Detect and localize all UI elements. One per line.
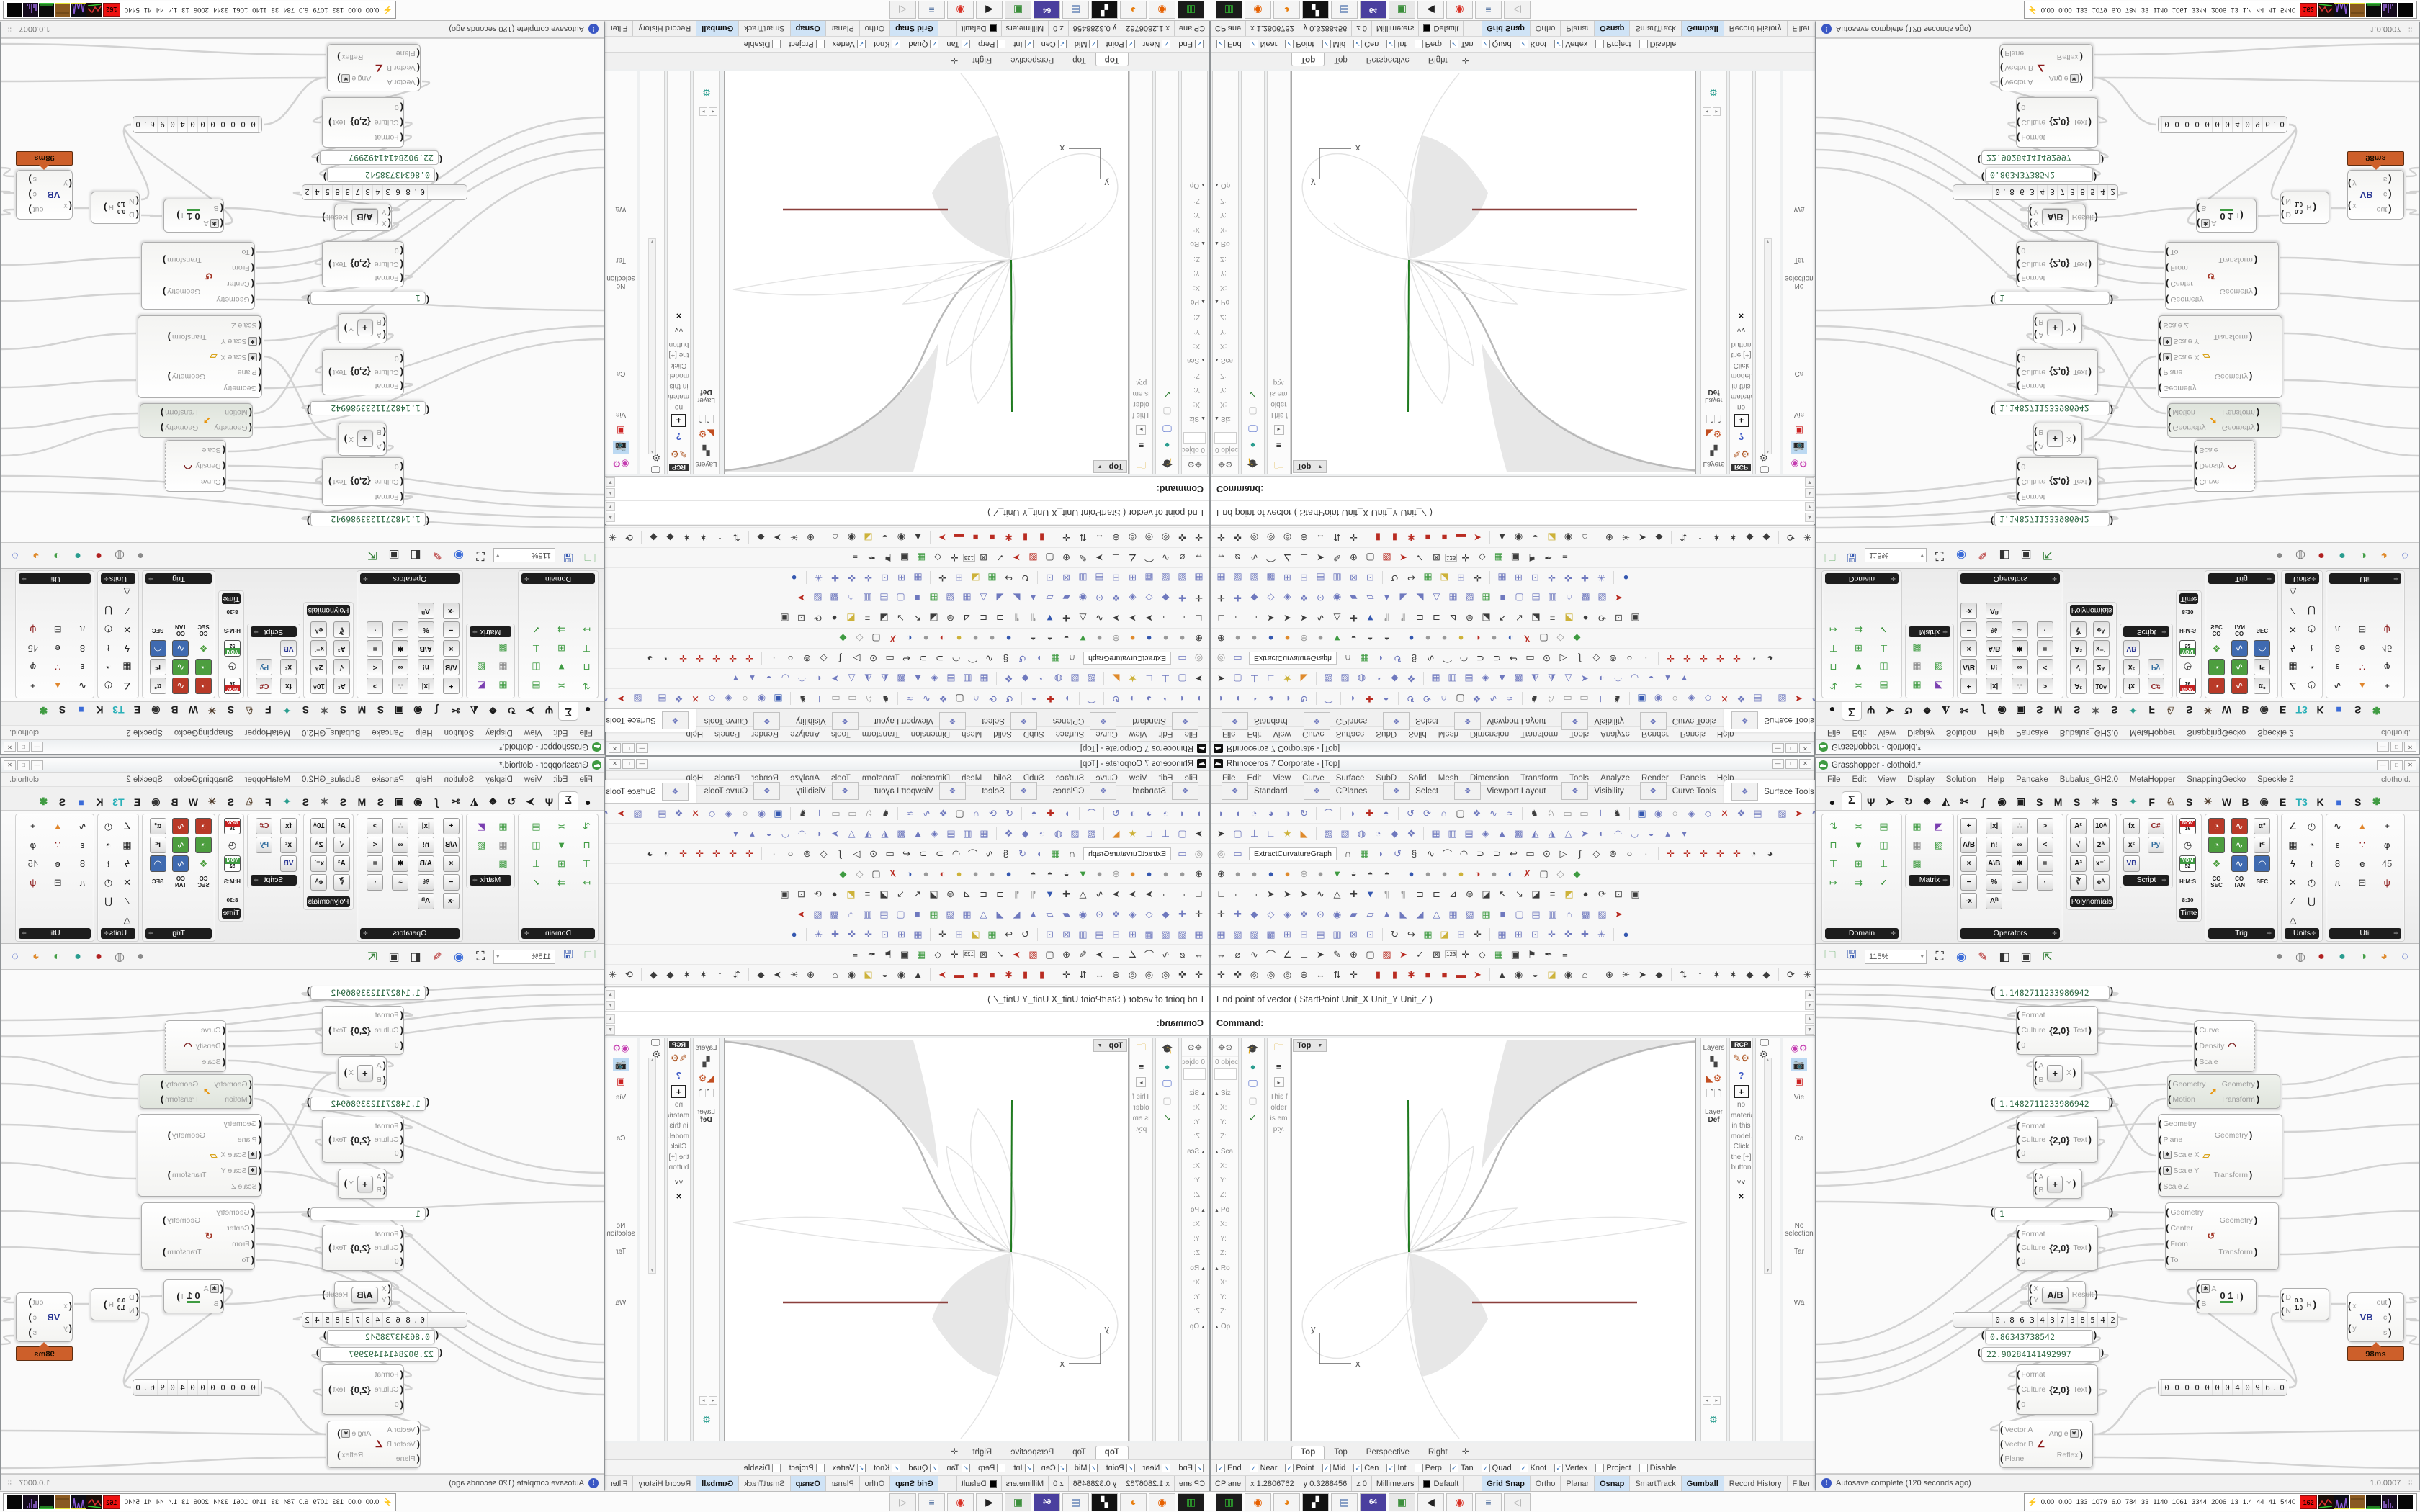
check-icon[interactable]: ✓: [1160, 1112, 1175, 1125]
close-icon[interactable]: ✕: [668, 307, 690, 323]
gh-component-icon[interactable]: CO SEC: [2208, 621, 2225, 638]
gh-panel[interactable]: 1.1482711233986942(): [1994, 401, 2110, 415]
gh-component-icon[interactable]: ∿: [74, 818, 91, 834]
toolbar-icon[interactable]: ↖: [909, 611, 926, 626]
gh-input-port[interactable]: (Format: [375, 1122, 403, 1130]
toolbar-icon[interactable]: ◉: [893, 967, 910, 983]
move-component[interactable]: (Geometry(Motion➚Geometry)Transform): [140, 403, 253, 438]
toolbar-icon[interactable]: ▦: [913, 947, 930, 963]
toolbar-icon[interactable]: ⊥: [1592, 806, 1609, 822]
viewport-top[interactable]: Top▼ yx: [724, 1038, 1129, 1441]
gh-component-icon[interactable]: ◩: [1931, 818, 1948, 834]
osnap-checkbox[interactable]: ✓: [1126, 1464, 1135, 1472]
toolbar-icon[interactable]: ∿: [1157, 550, 1174, 566]
digit-cell[interactable]: 0: [228, 1380, 238, 1395]
gh-input-port[interactable]: (Format: [375, 1230, 403, 1238]
toolbar-icon[interactable]: ▲: [1494, 967, 1510, 983]
toolbar-icon[interactable]: ⊥: [1108, 947, 1124, 963]
digit-cell[interactable]: 3: [2067, 185, 2077, 199]
gh-component-icon[interactable]: ⊞: [1850, 855, 1867, 872]
toolbar-icon[interactable]: ↻: [1017, 570, 1034, 586]
minimize-button[interactable]: —: [1772, 744, 1784, 754]
toolbar-icon[interactable]: ➤: [1108, 886, 1124, 902]
osnap-knot[interactable]: ✓Knot: [874, 40, 901, 49]
toolbar-tab-cplanes[interactable]: ❖CPlanes: [1296, 779, 1375, 803]
collapse-chevrons[interactable]: ˅˅: [1730, 1176, 1752, 1191]
toolbar-icon[interactable]: ⊡: [1362, 927, 1379, 942]
toolbar-icon[interactable]: ▭: [844, 691, 861, 707]
status-toggle-smarttrack[interactable]: SmartTrack: [1630, 20, 1681, 36]
toolbar-icon[interactable]: ✚: [1345, 886, 1362, 902]
gh-component-icon[interactable]: 8:30: [2179, 893, 2196, 909]
toolbar-icon[interactable]: ✚: [1577, 927, 1593, 942]
toolbar-icon[interactable]: ⊃: [1489, 651, 1505, 667]
gh-input-port[interactable]: (Vector A: [2000, 1426, 2033, 1434]
gh-component-icon[interactable]: π: [74, 621, 91, 638]
toolbar-icon[interactable]: ▨: [1594, 906, 1610, 922]
toolbar-icon[interactable]: ❖: [1000, 671, 1017, 687]
gh-component-icon[interactable]: ▦: [495, 678, 511, 694]
range-component[interactable]: (D(N0.0 1.0R): [91, 1288, 140, 1320]
toolbar-icon[interactable]: ▲: [1025, 906, 1041, 922]
floppy64-icon[interactable]: 64: [1034, 1, 1060, 19]
gh-input-port[interactable]: (Plane: [2000, 1454, 2033, 1463]
viewport-page-tab-2[interactable]: Perspective: [1357, 53, 1419, 66]
rhinoceros-icon[interactable]: ▞: [1302, 1, 1329, 19]
gh-component-icon[interactable]: NOV16: [224, 818, 241, 834]
gh-input-port[interactable]: (Center: [217, 1224, 254, 1233]
zoom-extents-icon[interactable]: ⛶: [1931, 547, 1948, 564]
toolbar-icon[interactable]: ✛: [1058, 530, 1075, 546]
gh-output-port[interactable]: Geometry): [2218, 1216, 2257, 1225]
toolbar-icon[interactable]: ▨: [1379, 947, 1395, 963]
toolbar-icon[interactable]: ↔: [1312, 530, 1329, 546]
gh-component-icon[interactable]: ×: [443, 640, 460, 657]
toolbar-icon[interactable]: ▲: [910, 671, 926, 687]
toolbar-icon[interactable]: ✛: [708, 651, 725, 667]
gh-tab-kangaroo[interactable]: ▣: [390, 794, 408, 810]
open-file-icon[interactable]: 🗀: [581, 547, 599, 564]
gh-input-port[interactable]: (Vector A: [387, 1426, 420, 1434]
digit-cell[interactable]: 0: [2212, 117, 2222, 132]
toolbar-icon[interactable]: ◪: [1478, 611, 1494, 626]
expression-badge-icon[interactable]: ✱: [210, 1284, 219, 1293]
toolbar-icon[interactable]: ◆: [1651, 530, 1667, 546]
gh-input-port[interactable]: (y: [63, 179, 72, 188]
gh-group-label[interactable]: Trig: [145, 928, 212, 939]
status-segment-3[interactable]: z 0: [1048, 1476, 1068, 1492]
toolbar-icon[interactable]: ●: [1141, 866, 1157, 882]
rhino-titlebar[interactable]: Rhinoceros 7 Corporate - [Top] —□✕: [1211, 757, 1814, 771]
gh-tab-plugin[interactable]: ✶: [315, 702, 333, 718]
toolbar-icon[interactable]: ▦: [1494, 927, 1510, 942]
toolbar-icon[interactable]: ✳: [1618, 530, 1634, 546]
digit-cell[interactable]: 3: [2047, 1313, 2057, 1327]
gh-component-icon[interactable]: ❖: [195, 640, 212, 657]
gh-component-icon[interactable]: ◔: [2208, 659, 2225, 675]
toolbar-tab-standard[interactable]: ❖Standard: [1124, 709, 1206, 733]
toolbar-icon[interactable]: ▭: [1522, 846, 1538, 862]
gh-input-port[interactable]: (Format: [2017, 133, 2045, 142]
gh-component-icon[interactable]: %: [418, 621, 434, 638]
angle-component[interactable]: (Vector A(Vector B(Plane∠Angle✱)Reflex): [1999, 1421, 2093, 1468]
toolbar-icon[interactable]: ⌐: [1229, 886, 1246, 902]
toolbar-icon[interactable]: ⊐: [992, 886, 1008, 902]
gh-input-port[interactable]: (X: [382, 219, 391, 228]
toolbar-icon[interactable]: ✱: [1403, 967, 1420, 983]
gh-digit-scroller[interactable]: 00000004096.0(): [133, 116, 262, 133]
gh-tab-plugin[interactable]: M: [352, 702, 371, 717]
toolbar-icon[interactable]: ◖: [1229, 806, 1246, 822]
toolbar-icon[interactable]: ▣: [1507, 947, 1523, 963]
toolbar-icon[interactable]: ■: [1420, 967, 1436, 983]
toolbar-icon[interactable]: ❖: [1108, 906, 1124, 922]
toolbar-icon[interactable]: ◭: [877, 671, 893, 687]
toolbar-icon[interactable]: ⇅: [1675, 530, 1692, 546]
gh-input-port[interactable]: (0: [2017, 1041, 2045, 1050]
gh-input-port[interactable]: (Culture: [2017, 118, 2045, 127]
gh-tab-params[interactable]: ●: [1823, 795, 1842, 810]
blender-icon[interactable]: ◕: [1120, 1, 1147, 19]
digit-cell[interactable]: 4: [313, 185, 323, 199]
toolbar-icon[interactable]: ∿: [1312, 886, 1329, 902]
gh-tab-plugin[interactable]: K: [2311, 795, 2330, 810]
toolbar-icon[interactable]: ✚: [1229, 590, 1246, 606]
toolbar-icon[interactable]: ★: [1124, 671, 1141, 687]
props-section-view[interactable]: Vie: [605, 410, 637, 424]
osnap-checkbox[interactable]: ✓: [1353, 1464, 1362, 1472]
osnap-checkbox[interactable]: ✓: [1386, 40, 1395, 49]
toolbar-icon[interactable]: ◣: [1395, 906, 1412, 922]
gh-input-port[interactable]: (Format: [2017, 274, 2045, 282]
gh-tab-plugin[interactable]: ✶: [2087, 794, 2105, 810]
gh-input-port[interactable]: (Motion: [215, 409, 252, 418]
toolbar-icon[interactable]: ≡: [1556, 550, 1573, 566]
toolbar-icon[interactable]: ▾: [727, 826, 744, 842]
digit-cell[interactable]: .: [143, 117, 148, 132]
toolbar-icon[interactable]: ✛: [1191, 967, 1207, 983]
help-icon[interactable]: ?: [1734, 1068, 1749, 1081]
expression-badge-icon[interactable]: ✱: [248, 337, 257, 346]
toolbar-icon[interactable]: ◓: [1041, 866, 1058, 882]
preview-mode-icon[interactable]: ◉: [450, 948, 467, 966]
osnap-checkbox[interactable]: ✓: [892, 1464, 900, 1472]
gh-component-icon[interactable]: ◠: [150, 640, 166, 657]
toolbar-icon[interactable]: ◍: [1353, 671, 1370, 687]
toolbar-icon[interactable]: ✜: [1560, 570, 1577, 586]
props-section-wallpaper[interactable]: Wa: [605, 1256, 637, 1307]
gh-tab-plugin[interactable]: S: [2030, 702, 2049, 717]
gh-input-port[interactable]: (Format: [2017, 1370, 2045, 1379]
gh-component-icon[interactable]: ▦: [119, 659, 135, 675]
toolbar-icon[interactable]: §: [998, 846, 1014, 862]
gh-output-port[interactable]: c): [2377, 191, 2392, 199]
status-toggle-gumball[interactable]: Gumball: [696, 20, 738, 36]
toolbar-icon[interactable]: ▧: [1774, 691, 1791, 707]
toolbar-icon[interactable]: ∿: [1312, 611, 1329, 626]
toolbar-icon[interactable]: ↻: [1296, 691, 1312, 707]
gh-tab-plugin[interactable]: M: [2049, 795, 2068, 810]
toolbar-icon[interactable]: ▾: [1676, 826, 1693, 842]
orient-component[interactable]: (Geometry(Center(From(To↺Geometry)Transf…: [141, 242, 255, 310]
layer-filter-icon[interactable]: ▚: [699, 1056, 714, 1068]
list-view-icon[interactable]: ≡: [1272, 439, 1286, 452]
gh-component-icon[interactable]: ∴: [2012, 678, 2028, 694]
toolbar-icon[interactable]: ◎: [1246, 530, 1263, 546]
toolbar-icon[interactable]: ↪: [1403, 570, 1420, 586]
gh-tab-plugin[interactable]: B: [165, 795, 184, 810]
boxedit-section-op[interactable]: Op: [1213, 181, 1238, 197]
digit-cell[interactable]: 3: [363, 1313, 373, 1327]
gh-input-port[interactable]: (0: [375, 246, 403, 255]
scale-nu-component[interactable]: (Geometry(Plane(✱Scale X(✱Scale Y(Scale …: [138, 315, 262, 398]
gh-panel[interactable]: 1.1482711233986942(): [1994, 1097, 2110, 1111]
toolbar-icon[interactable]: ⇅: [1329, 530, 1345, 546]
toolbar-icon[interactable]: ◇: [704, 691, 720, 707]
boxedit-section-sca[interactable]: Sca: [1182, 1140, 1207, 1156]
toolbar-icon[interactable]: ▢: [1229, 826, 1246, 842]
gh-output-port[interactable]: X): [2066, 435, 2076, 444]
gh-input-port[interactable]: (N: [129, 197, 139, 205]
toolbar-icon[interactable]: ⟳: [621, 967, 637, 983]
toolbar-icon[interactable]: ◆: [1157, 906, 1174, 922]
toolbar-icon[interactable]: ⊠: [1058, 570, 1075, 586]
addition-component[interactable]: (A(B+Y): [2033, 1169, 2082, 1199]
digit-cell[interactable]: 8: [2007, 1313, 2017, 1327]
gh-output-port[interactable]: Transform): [161, 1095, 200, 1104]
maximize-button[interactable]: □: [1785, 759, 1798, 769]
toolbar-tab-visibility[interactable]: ❖Visibility: [788, 709, 866, 733]
toolbar-icon[interactable]: ●: [1157, 631, 1174, 647]
toolbar-icon[interactable]: ➤: [769, 967, 786, 983]
close-button[interactable]: ✕: [4, 742, 16, 752]
toolbar-icon[interactable]: ¶: [1008, 611, 1025, 626]
toolbar-icon[interactable]: ⊟: [1296, 927, 1312, 942]
toolbar-icon[interactable]: ◒: [761, 826, 777, 842]
command-scroll-up[interactable]: ▲: [1805, 513, 1814, 522]
gh-component-icon[interactable]: ▦: [495, 837, 511, 853]
osnap-cen[interactable]: ✓Cen: [1041, 1464, 1067, 1472]
layer-tools-icon[interactable]: ◣⚙: [699, 427, 714, 440]
toolbar-icon[interactable]: ■: [1436, 530, 1453, 546]
props-section-wallpaper[interactable]: Wa: [1783, 1256, 1815, 1307]
toolbar-icon[interactable]: ◉: [1329, 906, 1345, 922]
expression-badge-icon[interactable]: ✱: [2163, 353, 2172, 361]
gh-component-icon[interactable]: ▲: [2354, 818, 2370, 834]
boxedit-section-sca[interactable]: Sca: [1182, 356, 1207, 372]
boxedit-input[interactable]: [1214, 432, 1237, 444]
toolbar-icon[interactable]: ▩: [893, 826, 910, 842]
sketch-tool-icon[interactable]: ✎: [429, 948, 446, 966]
gh-tab-plugin[interactable]: K: [2311, 702, 2330, 717]
toolbar-icon[interactable]: ◈: [1683, 691, 1700, 707]
digit-cell[interactable]: 4: [2097, 1313, 2107, 1327]
toolbar-icon[interactable]: ⊃: [915, 651, 931, 667]
gh-menu-item[interactable]: Edit: [548, 728, 574, 738]
toolbar-icon[interactable]: ▩: [826, 906, 843, 922]
toolbar-icon[interactable]: ✗: [1519, 866, 1536, 882]
toolbar-icon[interactable]: ▥: [1544, 590, 1561, 606]
toolbar-icon[interactable]: ✛: [1213, 590, 1229, 606]
gh-component-icon[interactable]: YOM52: [2179, 640, 2196, 657]
layer-tools-icon[interactable]: ◣⚙: [1706, 427, 1722, 440]
toolbar-icon[interactable]: ▢: [951, 806, 968, 822]
toolbar-icon[interactable]: ▦: [959, 590, 975, 606]
status-segment-1[interactable]: x 1.2806762: [1246, 1476, 1299, 1492]
gh-input-port[interactable]: (Curve: [2195, 477, 2224, 486]
toolbar-tab-curve-tools[interactable]: ❖Curve Tools: [1632, 779, 1724, 803]
toolbar-icon[interactable]: ◉: [843, 967, 860, 983]
toolbar-icon[interactable]: ♞: [877, 806, 894, 822]
toolbar-icon[interactable]: ⊟: [1108, 570, 1124, 586]
gh-input-port[interactable]: (Geometry: [220, 1120, 261, 1128]
toolbar-icon[interactable]: ●: [1124, 866, 1141, 882]
viewport-top[interactable]: Top▼ yx: [1291, 71, 1696, 474]
construct-domain-component[interactable]: (✱A(B0 1I): [2196, 199, 2257, 233]
gh-component-icon[interactable]: √: [333, 659, 350, 675]
gh-component-icon[interactable]: ⊞: [553, 640, 570, 657]
prompt-scroll-down[interactable]: ▼: [606, 1025, 615, 1035]
gh-input-port[interactable]: (Geometry: [220, 384, 261, 392]
toolbar-icon[interactable]: ↑: [712, 967, 728, 983]
toolbar-icon[interactable]: ◆: [1569, 631, 1585, 647]
gh-component-icon[interactable]: Py: [2148, 837, 2164, 853]
gh-component-icon[interactable]: ⊟: [2354, 621, 2370, 638]
toolbar-icon[interactable]: ▨: [810, 906, 826, 922]
toolbar-icon[interactable]: ◔: [1745, 846, 1762, 862]
toolbar-icon[interactable]: ▤: [876, 590, 892, 606]
toolbar-icon[interactable]: ◪: [1478, 886, 1494, 902]
toolbar-icon[interactable]: ➤: [793, 590, 810, 606]
gh-output-port[interactable]: Transform): [2214, 1171, 2253, 1179]
gh-tab-sets[interactable]: Ψ: [1862, 795, 1881, 810]
toolbar-icon[interactable]: ✗: [884, 631, 901, 647]
mru-command-button[interactable]: ExtractCurvatureGraph: [1083, 847, 1171, 860]
gh-component-icon[interactable]: ≍: [1850, 818, 1867, 834]
toolbar-icon[interactable]: ✳: [1593, 927, 1610, 942]
osnap-checkbox[interactable]: ✓: [1058, 40, 1067, 49]
toolbar-icon[interactable]: ✚: [1174, 906, 1191, 922]
toolbar-icon[interactable]: ∩: [1340, 651, 1356, 667]
toolbar-icon[interactable]: ↪: [1000, 570, 1017, 586]
gh-input-port[interactable]: (X: [2029, 1284, 2038, 1293]
osnap-knot[interactable]: ✓Knot: [1520, 1464, 1547, 1472]
props-section-camera[interactable]: Ca: [605, 369, 637, 410]
digit-cell[interactable]: 7: [353, 1313, 363, 1327]
toolbar-icon[interactable]: ⊿: [1445, 611, 1461, 626]
gh-tab-mesh[interactable]: ◭: [1937, 794, 1955, 810]
toolbar-icon[interactable]: ◎: [1279, 530, 1296, 546]
toolbar-icon[interactable]: ❖: [1403, 671, 1420, 687]
gh-tab-curve[interactable]: ↻: [1899, 794, 1918, 810]
toolbar-icon[interactable]: ◍: [1353, 826, 1370, 842]
gh-input-port[interactable]: (Motion: [2168, 1095, 2205, 1104]
digit-cell[interactable]: 4: [373, 185, 383, 199]
viewport-page-tab-1[interactable]: Top: [1325, 53, 1357, 66]
prompt-scroll-down[interactable]: ▼: [606, 477, 615, 487]
gh-component-icon[interactable]: ⊤: [578, 640, 595, 657]
toolbar-icon[interactable]: ▴: [744, 826, 761, 842]
toolbar-icon[interactable]: ▣: [1633, 691, 1650, 707]
camera-properties-icon[interactable]: 📷: [1791, 1058, 1807, 1071]
osnap-checkbox[interactable]: [772, 40, 781, 49]
gh-component-icon[interactable]: x²: [2123, 659, 2140, 675]
gh-tab-maths[interactable]: Σ: [1842, 702, 1862, 721]
save-file-icon[interactable]: 🖫: [560, 948, 577, 966]
gh-input-port[interactable]: (To: [217, 248, 254, 256]
toolbar-icon[interactable]: ▭: [1522, 651, 1538, 667]
toolbar-icon[interactable]: ▮: [1386, 967, 1403, 983]
gh-menu-item[interactable]: Edit: [548, 775, 574, 785]
gh-component-icon[interactable]: ·: [2037, 874, 2053, 891]
gh-input-port[interactable]: (Format: [375, 382, 403, 390]
gh-output-port[interactable]: Transform): [2218, 1248, 2257, 1256]
gh-component-icon[interactable]: ⊥: [1875, 640, 1892, 657]
osnap-checkbox[interactable]: [997, 1464, 1005, 1472]
display-panel-scrollbar[interactable]: [1764, 1058, 1772, 1274]
gh-component-icon[interactable]: <: [367, 837, 383, 853]
toolbar-icon[interactable]: ●: [1577, 886, 1594, 902]
gh-component-icon[interactable]: ▧: [1931, 837, 1948, 853]
toolbar-icon[interactable]: △: [1075, 886, 1091, 902]
toolbar-icon[interactable]: ◪: [926, 611, 942, 626]
toolbar-icon[interactable]: ⇅: [1075, 530, 1091, 546]
preview-shaded-icon[interactable]: ●: [90, 547, 107, 564]
toolbar-icon[interactable]: ◔: [1745, 651, 1762, 667]
scale-nu-component[interactable]: (Geometry(Plane(✱Scale X(✱Scale Y(Scale …: [2158, 1114, 2282, 1197]
toolbar-icon[interactable]: ✛: [1191, 590, 1207, 606]
gh-component-icon[interactable]: ⇅: [578, 818, 595, 834]
toolbar-icon[interactable]: ❖: [1296, 906, 1312, 922]
close-button[interactable]: ✕: [1799, 744, 1811, 754]
toolbar-icon[interactable]: ▼: [1329, 631, 1345, 647]
chrome-icon[interactable]: ◉: [947, 1493, 974, 1511]
command-prompt[interactable]: Command:: [1211, 1012, 1816, 1035]
status-toggle-record-history[interactable]: Record History: [632, 1476, 696, 1492]
toolbar-icon[interactable]: ✚: [1042, 691, 1059, 707]
toolbar-icon[interactable]: 123: [963, 554, 975, 562]
toolbar-icon[interactable]: ▢: [1362, 947, 1379, 963]
status-layer[interactable]: Default: [956, 1476, 1001, 1492]
format-component[interactable]: (Format(Culture(0{2,0}Text): [322, 349, 404, 395]
format-component[interactable]: (Format(Culture(0{2,0}Text): [322, 97, 404, 148]
gh-tab-plugin[interactable]: W: [184, 795, 202, 810]
gh-output-port[interactable]: Transform): [168, 333, 207, 341]
toolbar-icon[interactable]: ⊃: [915, 846, 931, 862]
osnap-mid[interactable]: ✓Mid: [1075, 1464, 1098, 1472]
toolbar-icon[interactable]: ▭: [1229, 846, 1246, 862]
gh-component-icon[interactable]: fx: [2123, 678, 2140, 694]
toolbar-icon[interactable]: ❖: [1733, 691, 1749, 707]
maximize-button[interactable]: □: [17, 760, 30, 770]
toolbar-icon[interactable]: ●: [1279, 866, 1296, 882]
gh-component-icon[interactable]: SEC: [2254, 621, 2270, 638]
toolbar-icon[interactable]: ✛: [1662, 651, 1679, 667]
gh-menu-item[interactable]: View: [519, 728, 548, 738]
toolbar-icon[interactable]: ◎: [1141, 967, 1157, 983]
toolbar-icon[interactable]: ▤: [1312, 570, 1329, 586]
gh-output-port[interactable]: X): [2066, 1068, 2076, 1077]
toolbar-icon[interactable]: ▭: [1174, 846, 1191, 862]
toolbar-icon[interactable]: ↩: [898, 651, 915, 667]
osnap-checkbox[interactable]: [1415, 40, 1423, 49]
gh-group-label[interactable]: Polynomials: [307, 896, 350, 907]
gh-panel[interactable]: 22.90284141492997(): [320, 150, 439, 165]
toolbar-icon[interactable]: ≡: [859, 611, 876, 626]
radial-menu-icon[interactable]: ◌: [2396, 547, 2414, 564]
digit-cell[interactable]: 0: [2182, 1380, 2192, 1395]
toolbar-icon[interactable]: ➤: [1124, 611, 1141, 626]
